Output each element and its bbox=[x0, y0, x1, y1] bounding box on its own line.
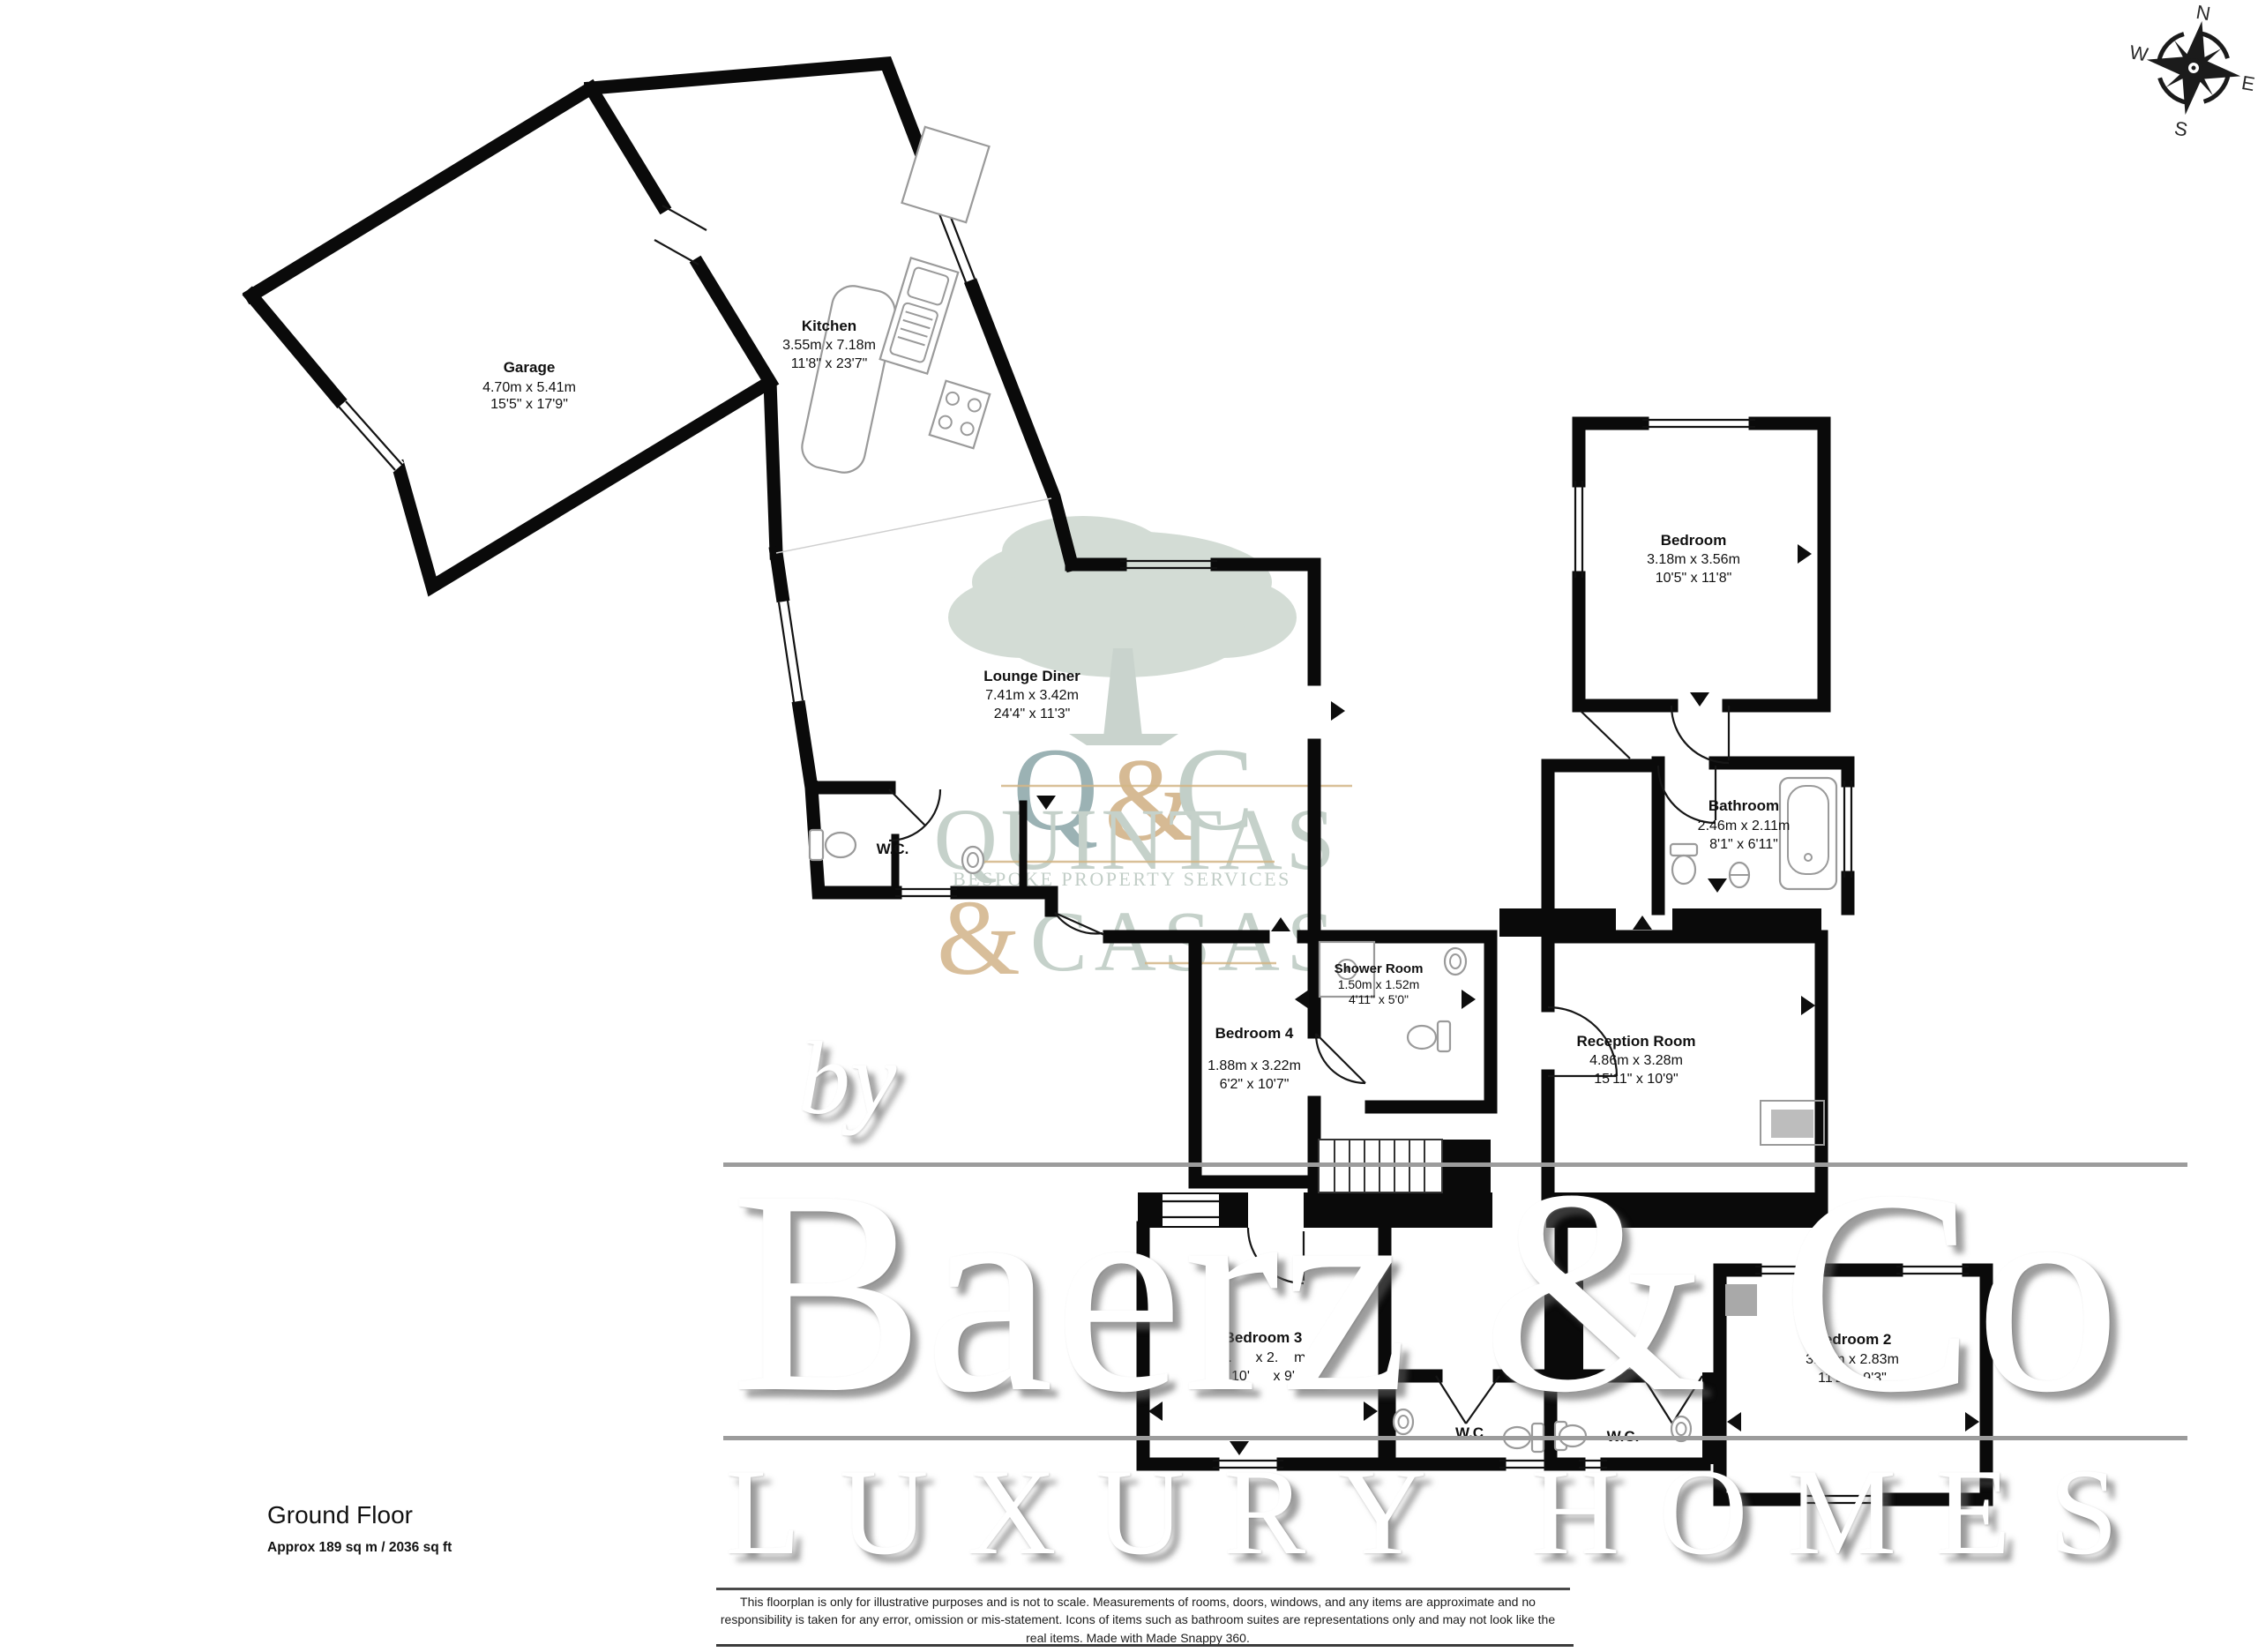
room-dims-m: 7.41m x 3.42m bbox=[985, 688, 1079, 703]
room-name: Bathroom bbox=[1708, 797, 1779, 814]
room-label-reception-room: Reception Room 4.86m x 3.28m 15'11" x 10… bbox=[1576, 1033, 1695, 1087]
room-dims-m: 3. x 2. m bbox=[1221, 1350, 1306, 1365]
room-dims-m: 4.70m x 5.41m bbox=[482, 380, 576, 395]
wc-label: W.C. bbox=[1607, 1428, 1640, 1445]
room-name: Garage bbox=[504, 359, 556, 376]
toilet-icon bbox=[1408, 1021, 1450, 1051]
floorplan-svg: Q & C QUINTAS BESPOKE PROPERTY SERVICES … bbox=[0, 0, 2258, 1652]
room-label-shower-room: Shower Room 1.50m x 1.52m 4'11" x 5'0" bbox=[1335, 961, 1424, 1006]
room-dims-m: 3.41m x 2.83m bbox=[1806, 1352, 1899, 1367]
room-dims-ft: 6'2" x 10'7" bbox=[1220, 1077, 1290, 1092]
door-arrows bbox=[1036, 544, 1979, 1455]
room-label-bedroom-4: Bedroom 4 1.88m x 3.22m 6'2" x 10'7" bbox=[1208, 1025, 1301, 1092]
hob-icon bbox=[930, 381, 990, 448]
basin-icon bbox=[1445, 948, 1466, 975]
wardrobe bbox=[1725, 1284, 1757, 1316]
room-dims-m: 3.18m x 3.56m bbox=[1647, 552, 1740, 567]
floor-title: Ground Floor bbox=[267, 1501, 413, 1529]
room-label-garage: Garage 4.70m x 5.41m 15'5" x 17'9" bbox=[482, 359, 576, 412]
compass-n: N bbox=[2194, 1, 2212, 25]
room-name: Lounge Diner bbox=[983, 668, 1080, 684]
room-dims-ft: 8'1" x 6'11" bbox=[1709, 837, 1778, 852]
room-label-bedroom-3: Bedroom 3 3. x 2. m 10' x 9' bbox=[1221, 1329, 1306, 1384]
room-name: Bedroom 4 bbox=[1215, 1025, 1294, 1042]
wc-label: W.C bbox=[1455, 1424, 1484, 1441]
wc-label: W.C. bbox=[877, 841, 909, 857]
room-dims-ft: 24'4" x 11'3" bbox=[994, 706, 1071, 721]
toilet-icon bbox=[1504, 1424, 1544, 1452]
basin-icon bbox=[962, 847, 983, 873]
room-name: Bedroom 3 bbox=[1224, 1329, 1303, 1346]
brand-watermark: Q & C QUINTAS BESPOKE PROPERTY SERVICES … bbox=[934, 516, 1352, 998]
floorplan-page: Q & C QUINTAS BESPOKE PROPERTY SERVICES … bbox=[0, 0, 2258, 1652]
room-dims-ft: 11'8" x 23'7" bbox=[791, 356, 868, 371]
room-name: Bedroom bbox=[1661, 532, 1727, 549]
room-dims-ft: 15'5" x 17'9" bbox=[490, 397, 568, 412]
bathtub-icon bbox=[1780, 778, 1836, 889]
room-dims-m: 4.86m x 3.28m bbox=[1589, 1053, 1683, 1068]
basin-icon bbox=[1671, 1417, 1691, 1441]
room-dims-ft: 4'11" x 5'0" bbox=[1349, 992, 1409, 1006]
room-dims-ft: 10'5" x 11'8" bbox=[1656, 571, 1732, 586]
room-name: Shower Room bbox=[1335, 961, 1424, 976]
toilet-icon bbox=[810, 830, 856, 860]
disclaimer-text: This floorplan is only for illustrative … bbox=[714, 1593, 1561, 1647]
floor-area: Approx 189 sq m / 2036 sq ft bbox=[267, 1540, 452, 1556]
room-label-bedroom: Bedroom 3.18m x 3.56m 10'5" x 11'8" bbox=[1647, 532, 1740, 586]
room-label-bathroom: Bathroom 2.46m x 2.11m 8'1" x 6'11" bbox=[1698, 797, 1791, 852]
kitchen-island bbox=[798, 282, 899, 476]
room-label-bedroom-2: Bedroom 2 3.41m x 2.83m 11'2" x 9'3" bbox=[1806, 1331, 1899, 1386]
room-dims-ft: 10' x 9' bbox=[1231, 1369, 1295, 1384]
room-name: Bedroom 2 bbox=[1813, 1331, 1892, 1348]
compass-w: W bbox=[2128, 41, 2150, 65]
room-name: Reception Room bbox=[1576, 1033, 1695, 1050]
room-dims-m: 1.88m x 3.22m bbox=[1208, 1058, 1301, 1073]
toilet-icon bbox=[1555, 1422, 1586, 1450]
disclaimer-bottom-line bbox=[716, 1644, 1574, 1647]
toilet-icon bbox=[1671, 844, 1697, 884]
basin-icon bbox=[1394, 1409, 1413, 1434]
room-name: Kitchen bbox=[802, 318, 856, 334]
disclaimer-top-line bbox=[716, 1588, 1570, 1590]
fireplace bbox=[1761, 1101, 1824, 1145]
room-dims-m: 1.50m x 1.52m bbox=[1338, 977, 1420, 991]
compass-rose: N E S W bbox=[2116, 0, 2258, 151]
bidet-icon bbox=[1730, 863, 1749, 887]
room-dims-m: 2.46m x 2.11m bbox=[1698, 819, 1791, 833]
room-dims-ft: 15'11" x 10'9" bbox=[1594, 1072, 1678, 1087]
room-dims-m: 3.55m x 7.18m bbox=[782, 338, 876, 353]
compass-e: E bbox=[2239, 71, 2256, 95]
room-dims-ft: 11'2" x 9'3" bbox=[1818, 1371, 1887, 1386]
room-label-lounge-diner: Lounge Diner 7.41m x 3.42m 24'4" x 11'3" bbox=[983, 668, 1080, 721]
compass-s: S bbox=[2172, 116, 2189, 140]
stairs bbox=[1319, 1140, 1442, 1192]
